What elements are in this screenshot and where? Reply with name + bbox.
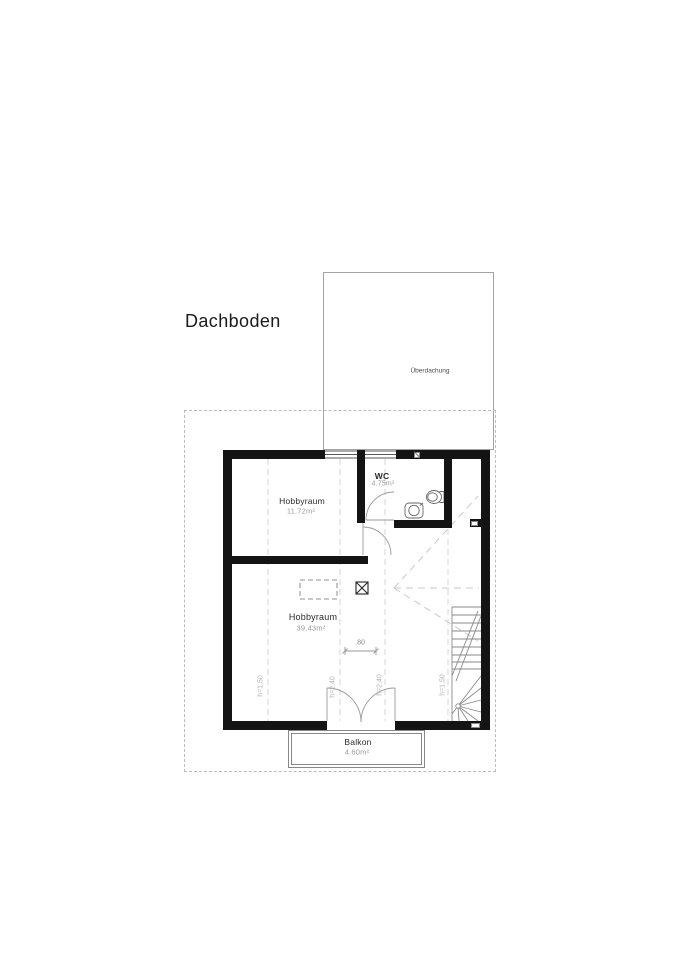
room-label-hobby-small: Hobbyraum <box>279 496 325 506</box>
wall-annotation <box>471 723 480 728</box>
staircase <box>452 607 481 721</box>
wall-annotation <box>414 452 420 458</box>
height-mark-4: h=1,50 <box>440 674 447 696</box>
dimension-line <box>343 647 379 655</box>
wall-annotation <box>471 521 478 526</box>
sink <box>405 503 423 518</box>
height-mark-2: h=2,40 <box>330 676 337 698</box>
wall-left <box>223 450 232 730</box>
wall-room-divider-horizontal <box>232 556 368 564</box>
wc-door-arc <box>366 492 394 520</box>
shaft-symbol <box>356 582 368 594</box>
wall-wc-right <box>444 459 452 528</box>
wall-top-right <box>396 450 490 459</box>
plan-linework <box>0 0 679 960</box>
floor-plan-canvas: Dachboden Überdachung <box>0 0 679 960</box>
room-label-hobby-large: Hobbyraum <box>289 612 337 622</box>
room-door-arc <box>363 527 391 555</box>
wall-room-divider-vertical <box>357 459 365 523</box>
dimension-text: .80 <box>355 640 365 647</box>
wall-top-left <box>223 450 325 459</box>
room-area-hobby-small: 11.72m² <box>287 507 315 516</box>
roof-window-outline <box>300 580 337 599</box>
toilet <box>427 491 445 504</box>
window-mullion <box>357 450 365 459</box>
room-area-hobby-large: 39.43m² <box>297 624 326 633</box>
room-label-balcony: Balkon <box>344 737 371 747</box>
room-area-wc: 4.75m² <box>372 481 395 488</box>
room-label-wc: WC <box>375 471 390 481</box>
height-mark-3: h=2,40 <box>377 674 384 696</box>
door-swings <box>327 492 395 722</box>
wall-bottom-left <box>223 721 327 730</box>
wall-right <box>481 450 490 730</box>
height-mark-1: h=1,50 <box>258 675 265 697</box>
room-area-balcony: 4.60m² <box>345 748 370 757</box>
